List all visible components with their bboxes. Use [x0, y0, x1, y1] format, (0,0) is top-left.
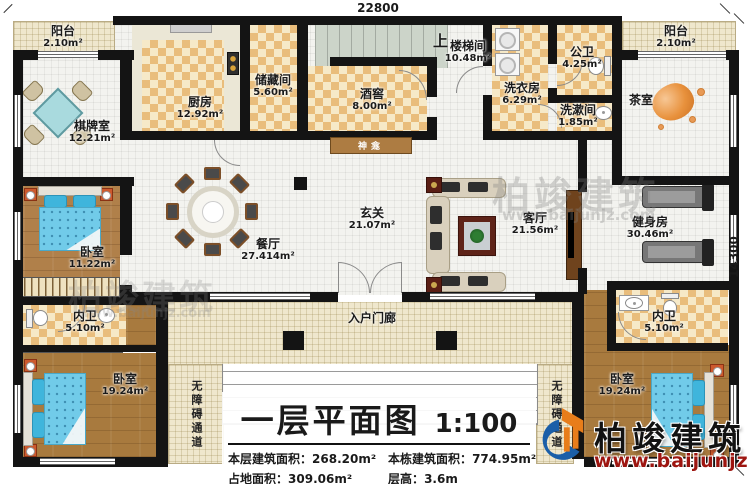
- wall: [156, 297, 168, 459]
- stat-label: 本层建筑面积：: [228, 452, 312, 466]
- room-area: 1.85m²: [558, 117, 597, 128]
- room-area: 6.29m²: [502, 95, 541, 106]
- wall: [427, 117, 437, 140]
- tv: [568, 212, 574, 258]
- floor-plan: 神龛: [0, 0, 750, 484]
- room-label-chess-room: 棋牌室12.21m²: [69, 120, 115, 145]
- wall: [427, 57, 437, 97]
- room-label-bedroom1: 卧室11.22m²: [69, 246, 115, 271]
- wall: [612, 176, 739, 185]
- wall: [120, 177, 132, 255]
- stat-value: 268.20m²: [312, 452, 376, 466]
- room-area: 10.48m²: [445, 53, 491, 64]
- room-name: 客厅: [523, 212, 547, 225]
- room-label-public-bath: 公卫4.25m²: [562, 46, 601, 71]
- nightstand: [24, 188, 37, 201]
- room-label-bath-right: 内卫5.10m²: [644, 310, 683, 335]
- sofa-cushion: [430, 232, 442, 250]
- room-area: 5.10m²: [65, 323, 104, 334]
- window: [40, 458, 115, 465]
- gym-machine: [642, 186, 712, 208]
- tick-mark: [720, 3, 731, 14]
- wall: [612, 16, 622, 185]
- room-name: 卧室: [113, 373, 137, 386]
- wall: [13, 177, 134, 186]
- wall: [607, 289, 616, 345]
- hall-right-corridor: [584, 290, 607, 345]
- wall: [548, 95, 622, 103]
- wall: [13, 297, 156, 305]
- room-name: 卧室: [610, 373, 634, 386]
- stat-label: 占地面积：: [228, 472, 288, 484]
- room-label-porch: 入户门廊: [348, 312, 396, 325]
- toilet: [26, 309, 33, 328]
- room-area: 12.21m²: [69, 133, 115, 144]
- title-underline: [228, 443, 530, 445]
- room-label-stairwell: 楼梯间10.48m²: [445, 40, 491, 65]
- room-area: 5.60m²: [253, 87, 292, 98]
- bed: [38, 186, 100, 250]
- room-name: 楼梯间: [450, 40, 486, 53]
- room-name: 酒窖: [360, 88, 384, 101]
- window: [14, 385, 21, 433]
- wall: [240, 16, 250, 140]
- room-area: 21.56m²: [512, 225, 558, 236]
- wall: [607, 281, 739, 290]
- plan-scale: 1:100: [435, 409, 518, 439]
- dining-chair: [245, 203, 258, 220]
- tick-mark: [3, 4, 12, 13]
- tea-room-pebble: [658, 124, 664, 130]
- room-name: 公卫: [570, 46, 594, 59]
- bed: [23, 372, 85, 444]
- room-label-bedroom2: 卧室19.24m²: [102, 373, 148, 398]
- toilet-bowl: [33, 310, 48, 326]
- room-area: 8.00m²: [352, 101, 391, 112]
- stat-value: 309.06m²: [288, 472, 352, 484]
- wall: [13, 345, 156, 352]
- stat-label: 层高：: [388, 472, 424, 484]
- room-area: 12.92m²: [177, 109, 223, 120]
- dining-table-ring: [202, 201, 224, 223]
- blanket: [44, 373, 86, 445]
- title-row: 一层平面图 1:100: [228, 394, 530, 442]
- room-area: 19.24m²: [599, 386, 645, 397]
- closet: [16, 277, 120, 297]
- room-label-balcony-tr: 阳台2.10m²: [656, 25, 695, 50]
- side-table: [426, 277, 442, 293]
- hall-left-corridor: [126, 305, 156, 345]
- gym-machine: [642, 241, 712, 263]
- ramp-left-label: 无障碍通道: [188, 380, 204, 450]
- bath-sink: [625, 297, 643, 309]
- room-name: 阳台: [51, 25, 75, 38]
- wall: [13, 50, 38, 60]
- dining-chair: [166, 203, 179, 220]
- toilet: [604, 56, 611, 76]
- brand-website: www.baijunjz.com: [594, 450, 750, 472]
- room-label-gym: 健身房30.46m²: [627, 216, 673, 241]
- porch-column: [283, 331, 304, 350]
- dimension-right: 14300: [727, 225, 741, 289]
- room-name: 茶室: [629, 94, 653, 107]
- room-label-foyer: 玄关21.07m²: [349, 207, 395, 232]
- tea-room-pebble: [697, 88, 705, 96]
- wall: [726, 50, 739, 60]
- wall: [483, 131, 622, 140]
- stove: [227, 52, 239, 75]
- room-name: 洗衣房: [504, 82, 540, 95]
- room-area: 27.414m²: [241, 251, 294, 262]
- room-name: 储藏间: [255, 74, 291, 87]
- stat-value: 774.95m²: [472, 452, 536, 466]
- window: [14, 95, 21, 147]
- brand-logo: 柏竣建筑 www.baijunjz.com: [536, 400, 748, 480]
- room-area: 2.10m²: [656, 38, 695, 49]
- room-label-bath-left: 内卫5.10m²: [65, 310, 104, 335]
- wall: [548, 16, 557, 64]
- room-label-tea-room: 茶室: [629, 94, 653, 107]
- room-name: 卧室: [80, 246, 104, 259]
- porch-column: [436, 331, 457, 350]
- window: [430, 293, 535, 300]
- shrine-label: 神龛: [358, 139, 384, 152]
- plan-stats: 本层建筑面积：268.20m² 本栋建筑面积：774.95m² 占地面积：309…: [228, 450, 530, 484]
- stat-label: 本栋建筑面积：: [388, 452, 472, 466]
- wall: [330, 57, 437, 66]
- room-label-bedroom3: 卧室19.24m²: [599, 373, 645, 398]
- wall: [578, 140, 587, 192]
- room-label-wine-cellar: 酒窖8.00m²: [352, 88, 391, 113]
- washing-machine: [495, 28, 520, 51]
- room-name: 内卫: [652, 310, 676, 323]
- room-name: 洗漱间: [560, 104, 596, 117]
- brand-logo-icon: [536, 406, 588, 474]
- stat-building-area: 本栋建筑面积：774.95m²: [388, 450, 530, 467]
- room-area: 2.10m²: [43, 38, 82, 49]
- room-area: 5.10m²: [644, 323, 683, 334]
- side-table: [426, 177, 442, 193]
- wall: [578, 268, 587, 294]
- window: [210, 293, 310, 300]
- room-name: 健身房: [632, 216, 668, 229]
- room-area: 4.25m²: [562, 59, 601, 70]
- window: [14, 212, 21, 260]
- tea-room-pebble: [689, 116, 696, 123]
- room-name: 餐厅: [256, 238, 280, 251]
- stat-floor-height: 层高：3.6m: [388, 470, 530, 484]
- room-name: 厨房: [188, 96, 212, 109]
- wall: [113, 16, 622, 25]
- room-label-storage: 储藏间5.60m²: [253, 74, 292, 99]
- room-name: 阳台: [664, 25, 688, 38]
- dining-chair: [204, 167, 221, 180]
- room-name: 入户门廊: [348, 312, 396, 325]
- washing-machine: [495, 53, 520, 76]
- room-label-washroom: 洗漱间1.85m²: [558, 104, 597, 129]
- hall-column: [294, 177, 307, 190]
- room-label-dining: 餐厅27.414m²: [241, 238, 294, 263]
- stat-value: 3.6m: [424, 472, 458, 484]
- plant: [470, 229, 484, 243]
- sofa-cushion: [468, 276, 488, 286]
- room-area: 30.46m²: [627, 229, 673, 240]
- room-area: 19.24m²: [102, 386, 148, 397]
- stat-floor-area: 本层建筑面积：268.20m²: [228, 450, 388, 467]
- plan-title: 一层平面图: [241, 394, 421, 442]
- stat-footprint-area: 占地面积：309.06m²: [228, 470, 388, 484]
- window: [638, 51, 726, 58]
- sofa-cushion: [430, 206, 442, 224]
- sofa-cushion: [468, 182, 488, 192]
- room-label-balcony-tl: 阳台2.10m²: [43, 25, 82, 50]
- window: [730, 95, 737, 147]
- room-name: 棋牌室: [74, 120, 110, 133]
- toilet: [661, 293, 679, 299]
- title-block: 一层平面图 1:100 本层建筑面积：268.20m² 本栋建筑面积：774.9…: [222, 392, 536, 484]
- room-name: 玄关: [360, 207, 384, 220]
- room-name: 内卫: [73, 310, 97, 323]
- wall: [607, 343, 728, 351]
- shrine: 神龛: [330, 137, 412, 154]
- sofa-cushion: [440, 182, 460, 192]
- room-label-kitchen: 厨房12.92m²: [177, 96, 223, 121]
- nightstand: [24, 359, 37, 372]
- room-area: 21.07m²: [349, 220, 395, 231]
- dining-chair: [204, 243, 221, 256]
- sofa-cushion: [440, 276, 460, 286]
- room-label-laundry: 洗衣房6.29m²: [502, 82, 541, 107]
- wall: [297, 16, 308, 140]
- window: [38, 51, 98, 58]
- room-area: 11.22m²: [69, 259, 115, 270]
- room-label-living: 客厅21.56m²: [512, 212, 558, 237]
- wall: [120, 50, 132, 140]
- dimension-top: 22800: [357, 1, 399, 15]
